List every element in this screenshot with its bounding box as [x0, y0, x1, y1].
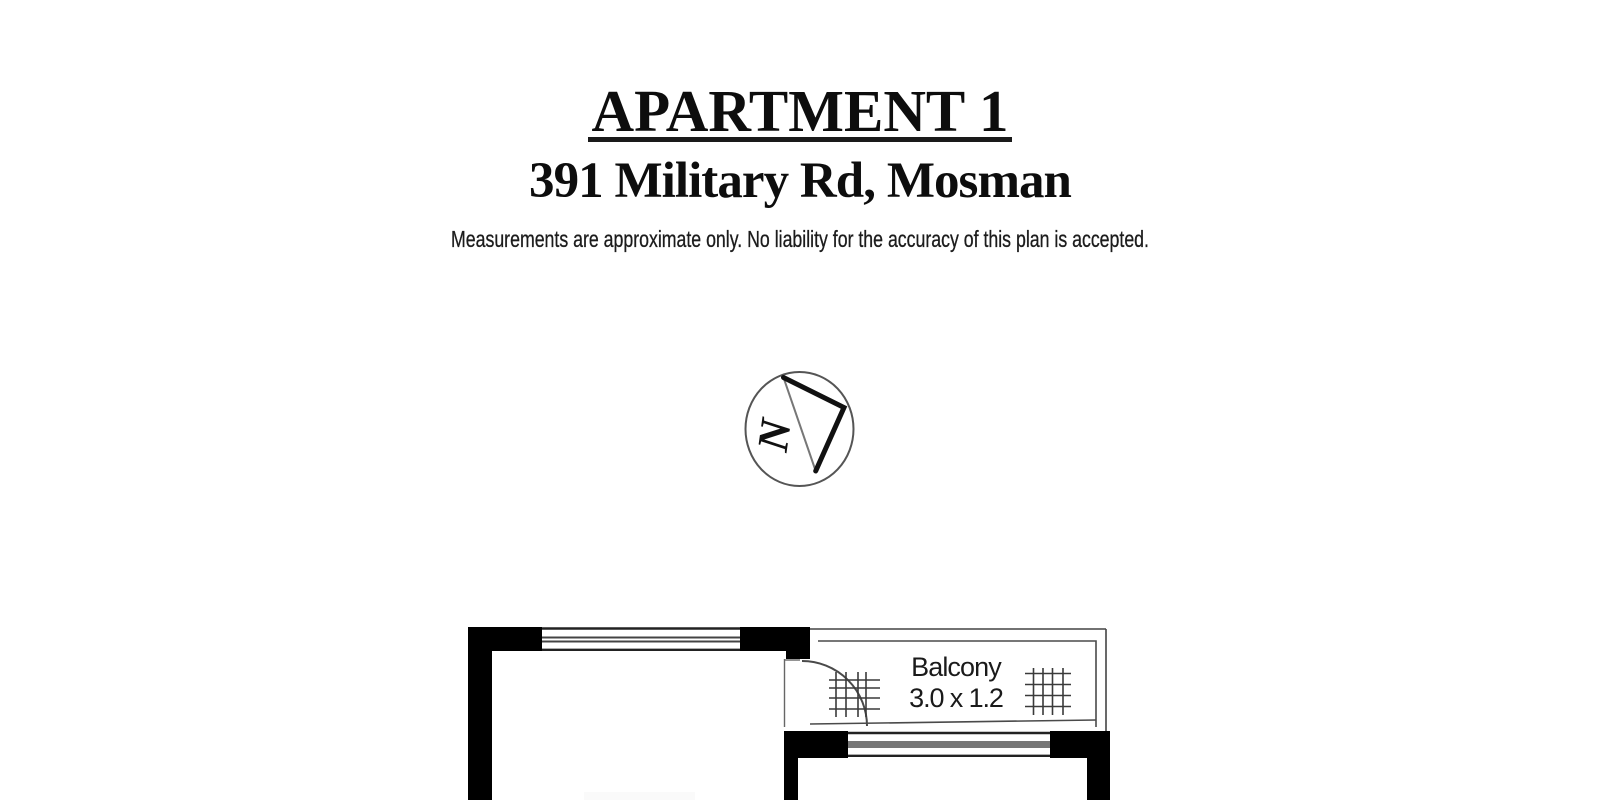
svg-text:N: N	[748, 414, 801, 455]
